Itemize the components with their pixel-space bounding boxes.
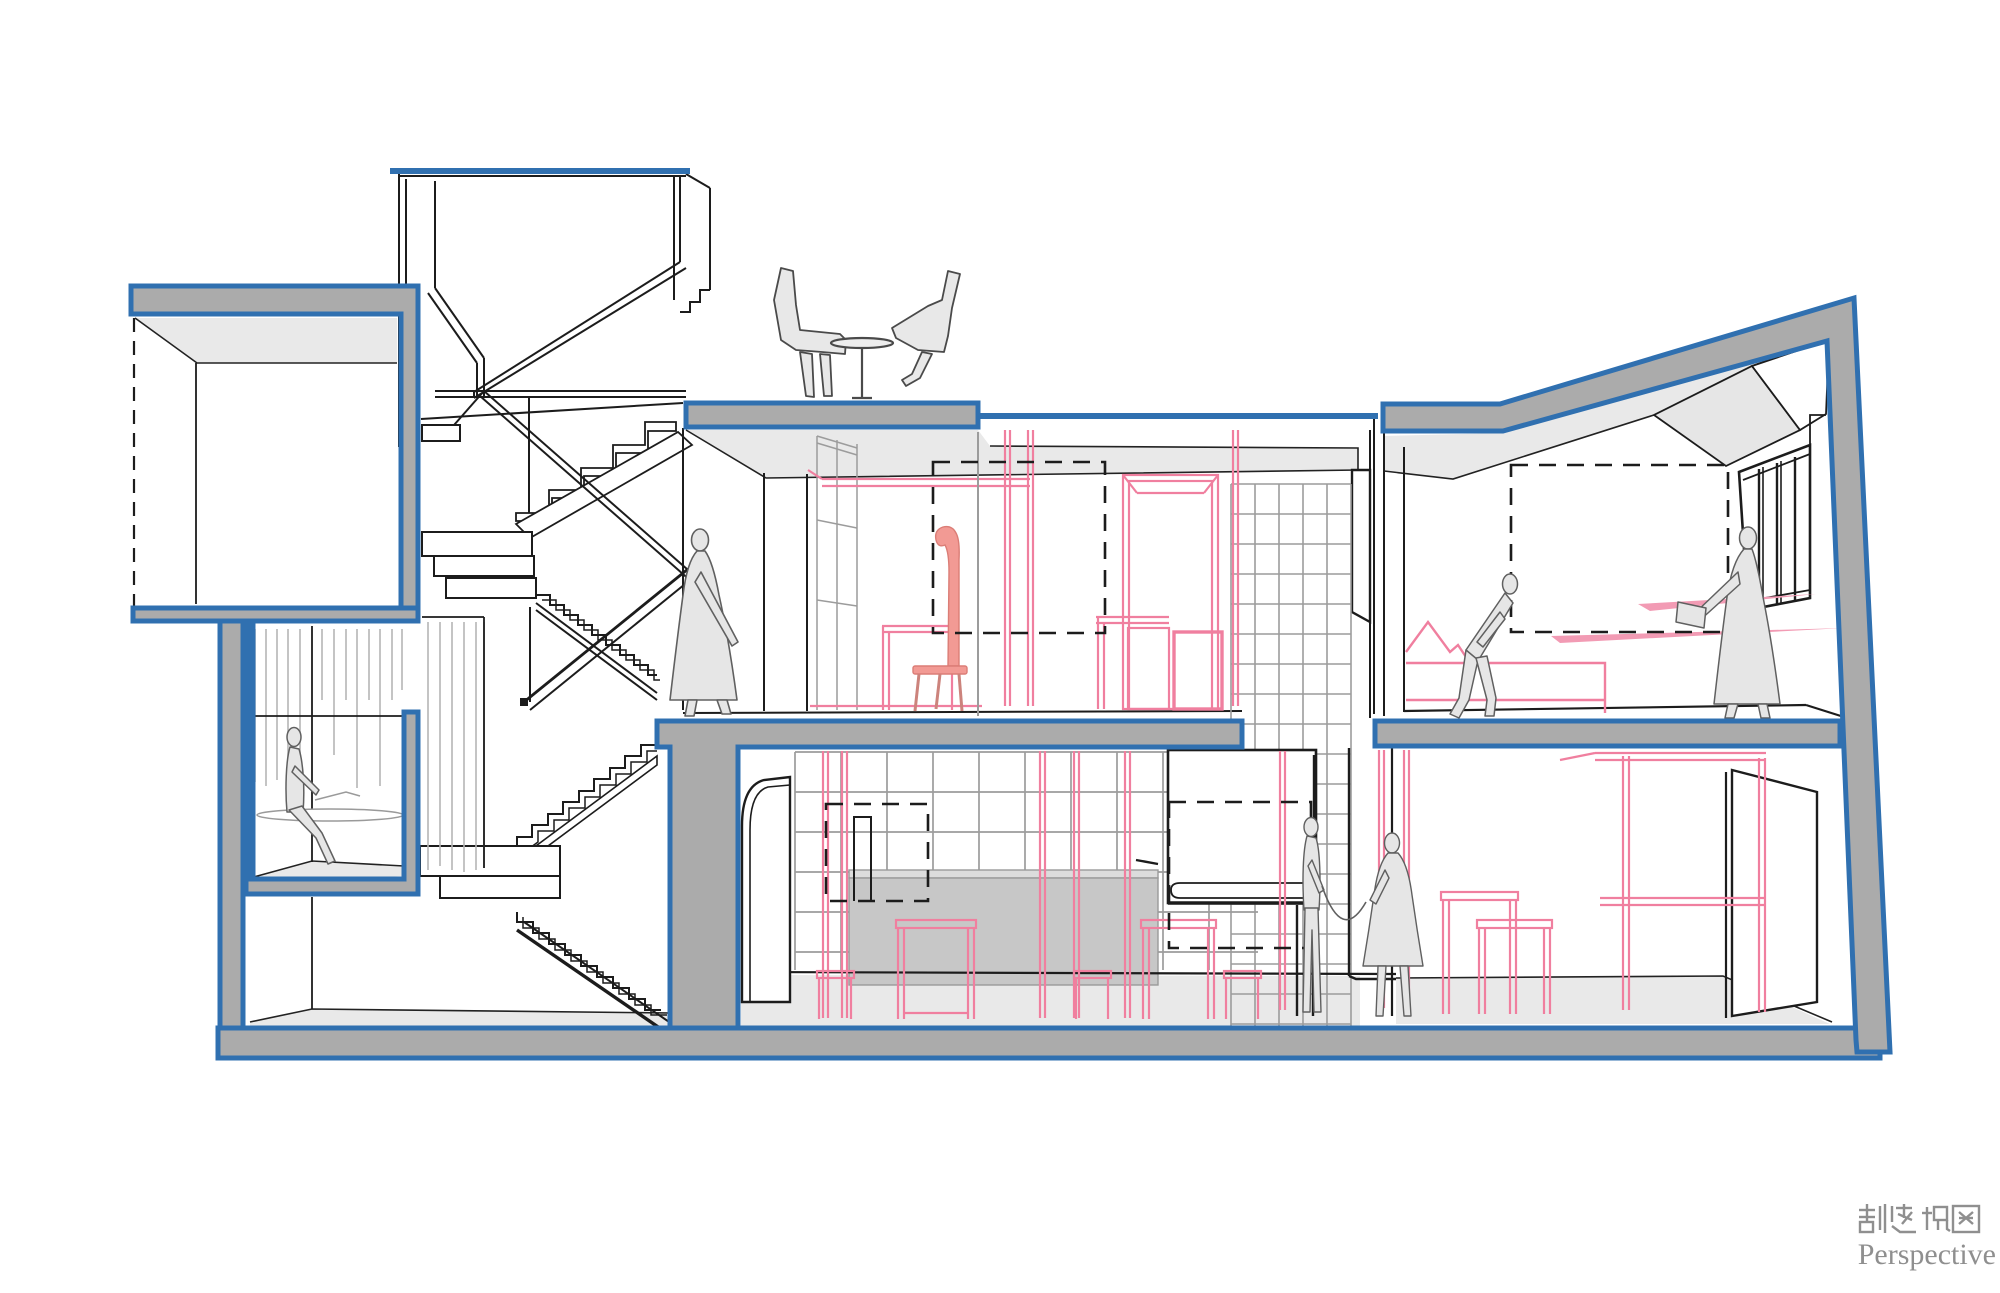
- svg-text:Perspective: Perspective: [1858, 1238, 1996, 1271]
